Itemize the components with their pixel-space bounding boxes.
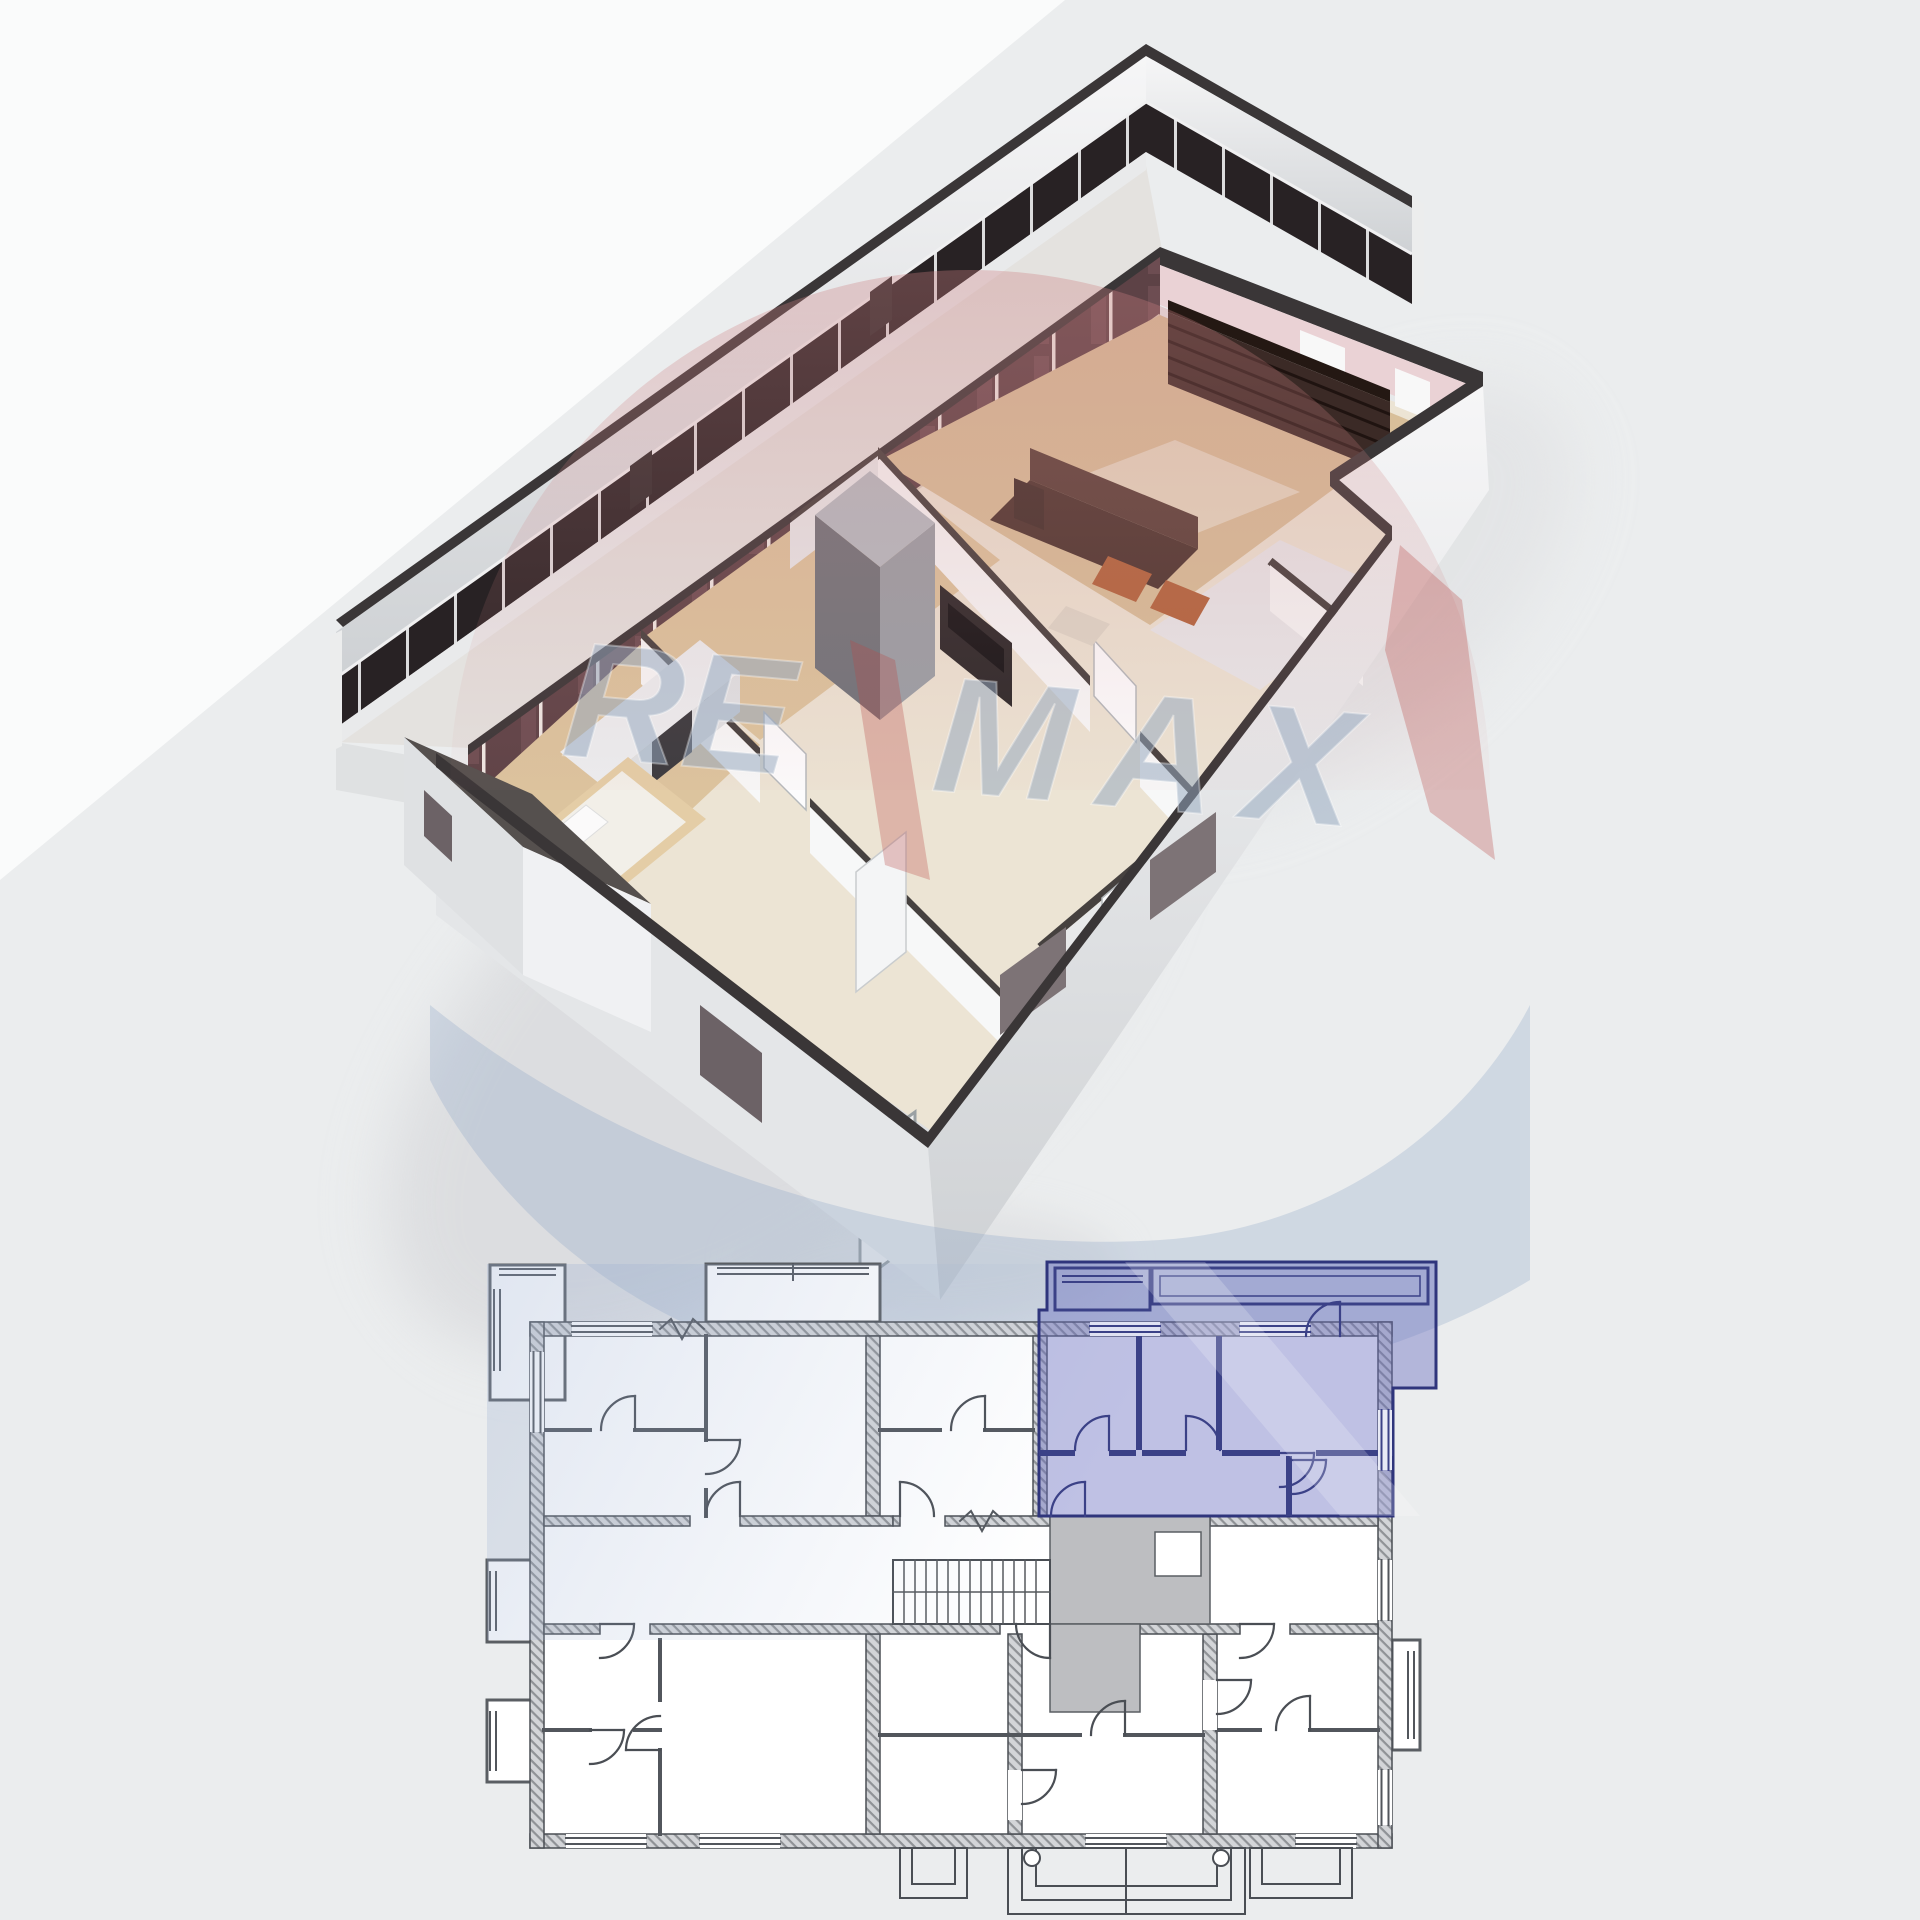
watermark-text-max: MAX <box>927 642 1392 865</box>
watermark-text-re: RE <box>557 607 806 811</box>
floor-plan-scene: RE MAX <box>0 0 1920 1920</box>
porch-column <box>1024 1850 1040 1866</box>
highlighted-unit <box>1039 1262 1436 1516</box>
porch-column <box>1213 1850 1229 1866</box>
listing-image: RE MAX <box>0 0 1920 1920</box>
floor-plan-2d <box>487 1262 1436 1914</box>
elevator <box>1155 1532 1201 1576</box>
